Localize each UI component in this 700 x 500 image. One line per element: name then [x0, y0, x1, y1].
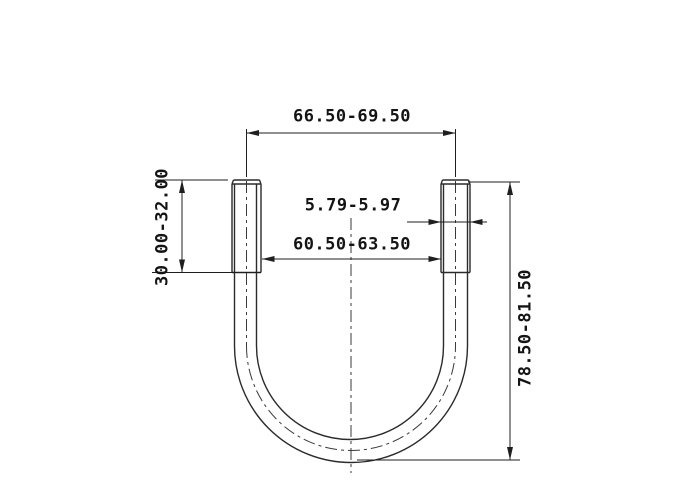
top-dim-right-arrow: [443, 130, 456, 136]
top-dim-extension-lines: [247, 129, 456, 177]
right-dim-down-arrow: [507, 447, 513, 460]
top-dim-left-arrow: [247, 130, 260, 136]
inner-dim-left-arrow: [262, 256, 275, 262]
dimension-lines: [152, 129, 520, 460]
right-dim-extension-lines: [357, 182, 520, 460]
ubolt-technical-drawing: 66.50-69.50 5.79-5.97 60.50-63.50 30.00-…: [0, 0, 700, 500]
left-dim-down-arrow: [179, 260, 185, 273]
diameter-right-arrow: [470, 219, 483, 225]
right-dim-up-arrow: [507, 182, 513, 195]
rod-diameter-dimension-label: 5.79-5.97: [305, 198, 402, 215]
inner-width-dimension-label: 60.50-63.50: [293, 237, 411, 254]
left-dim-up-arrow: [179, 180, 185, 193]
left-leg-rod-lines: [235, 184, 257, 346]
inner-dim-right-arrow: [429, 256, 442, 262]
outer-width-dimension-label: 66.50-69.50: [293, 109, 411, 126]
total-height-dimension-label: 78.50-81.50: [518, 269, 535, 387]
diameter-left-arrow: [429, 219, 442, 225]
thread-length-dimension-label: 30.00-32.00: [155, 168, 172, 286]
u-bend-inner-arc: [257, 346, 444, 440]
